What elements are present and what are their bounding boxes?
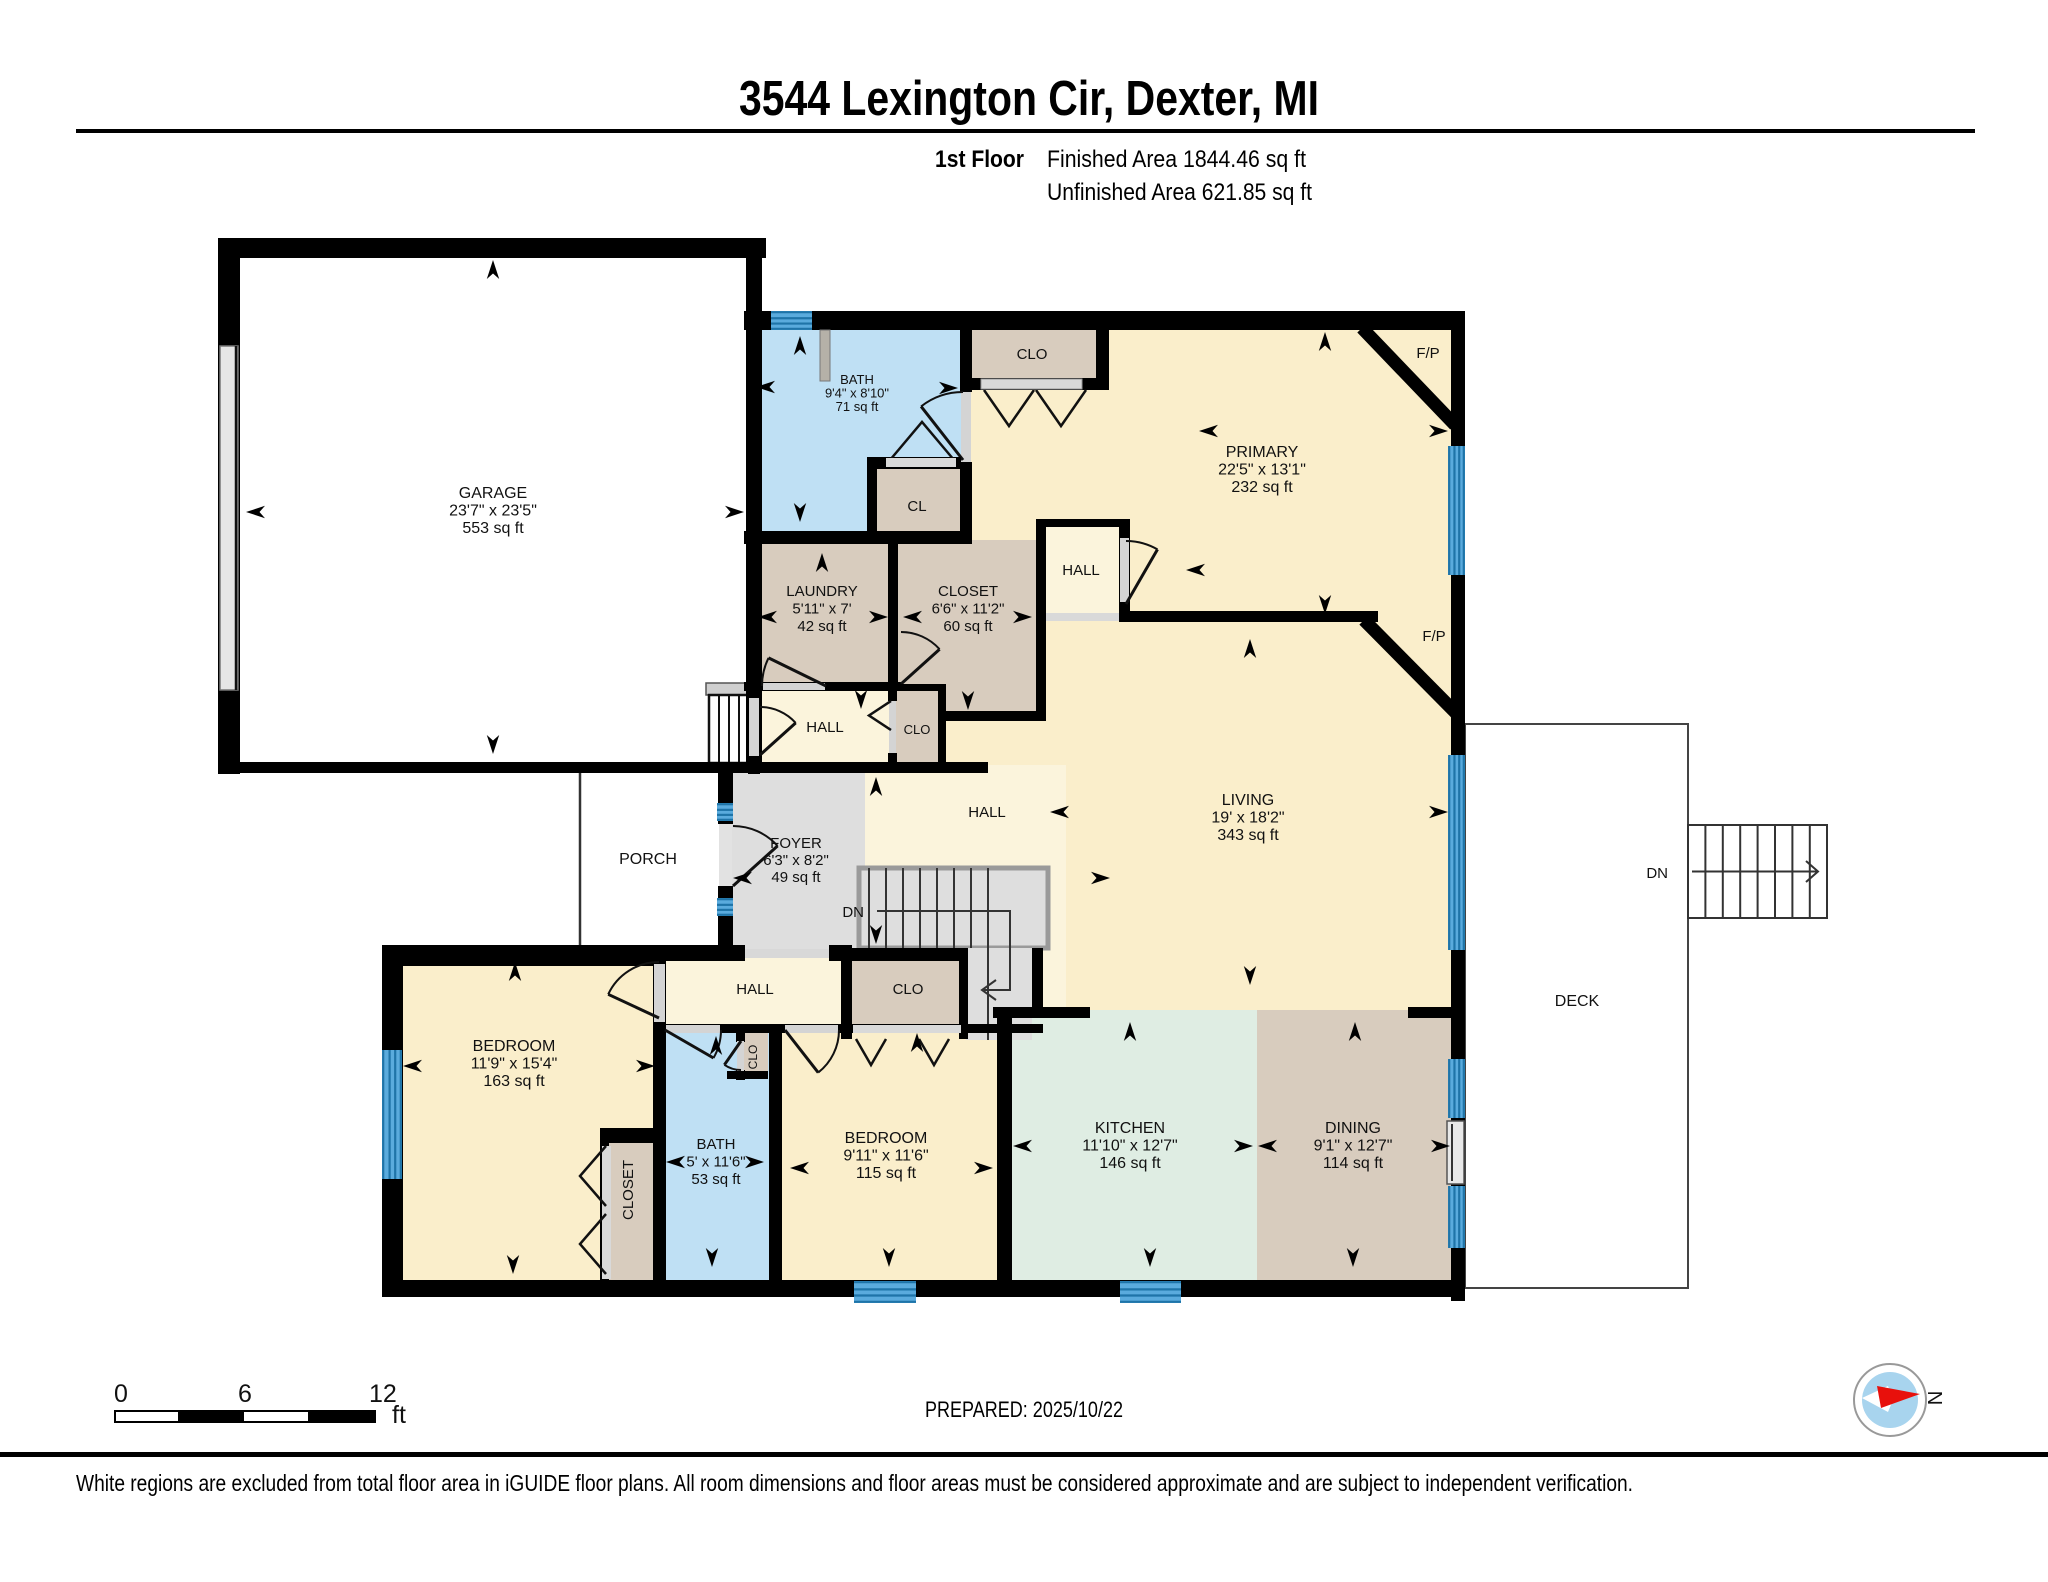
svg-text:5' x 11'6": 5' x 11'6" <box>686 1154 745 1171</box>
svg-text:HALL: HALL <box>806 719 844 736</box>
svg-text:F/P: F/P <box>1422 628 1445 645</box>
svg-text:CLOSET: CLOSET <box>620 1160 637 1220</box>
svg-text:6'3" x 8'2": 6'3" x 8'2" <box>763 852 829 869</box>
svg-text:CLO: CLO <box>904 722 931 737</box>
svg-text:PRIMARY: PRIMARY <box>1226 444 1299 461</box>
svg-text:1st Floor: 1st Floor <box>935 146 1024 173</box>
svg-text:232 sq ft: 232 sq ft <box>1231 479 1293 496</box>
svg-text:N: N <box>1923 1391 1945 1405</box>
svg-text:Unfinished Area 621.85 sq ft: Unfinished Area 621.85 sq ft <box>1047 179 1312 206</box>
svg-text:LAUNDRY: LAUNDRY <box>786 583 857 600</box>
svg-text:BEDROOM: BEDROOM <box>845 1130 928 1147</box>
svg-text:CL: CL <box>907 498 926 515</box>
svg-text:6: 6 <box>238 1380 252 1408</box>
svg-text:11'10" x 12'7": 11'10" x 12'7" <box>1082 1138 1177 1155</box>
svg-text:42 sq ft: 42 sq ft <box>797 618 847 635</box>
svg-text:HALL: HALL <box>736 981 774 998</box>
svg-text:FOYER: FOYER <box>770 835 822 852</box>
svg-text:CLO: CLO <box>746 1045 760 1070</box>
svg-text:DN: DN <box>1646 865 1668 882</box>
svg-text:9'11" x 11'6": 9'11" x 11'6" <box>843 1148 928 1165</box>
svg-text:9'1" x 12'7": 9'1" x 12'7" <box>1314 1138 1393 1155</box>
svg-text:115 sq ft: 115 sq ft <box>856 1165 917 1182</box>
svg-text:CLO: CLO <box>893 981 924 998</box>
svg-text:DINING: DINING <box>1325 1120 1381 1137</box>
svg-text:White regions are excluded fro: White regions are excluded from total fl… <box>76 1470 1633 1496</box>
svg-text:PREPARED: 2025/10/22: PREPARED: 2025/10/22 <box>925 1397 1123 1422</box>
svg-text:GARAGE: GARAGE <box>459 485 527 502</box>
svg-text:3544 Lexington Cir, Dexter, MI: 3544 Lexington Cir, Dexter, MI <box>739 72 1319 126</box>
svg-text:19' x 18'2": 19' x 18'2" <box>1211 810 1284 827</box>
svg-text:163 sq ft: 163 sq ft <box>483 1073 545 1090</box>
svg-text:114 sq ft: 114 sq ft <box>1323 1155 1384 1172</box>
svg-text:BEDROOM: BEDROOM <box>473 1038 556 1055</box>
svg-text:343 sq ft: 343 sq ft <box>1217 827 1279 844</box>
svg-text:71 sq ft: 71 sq ft <box>836 399 879 414</box>
svg-text:CLOSET: CLOSET <box>938 583 998 600</box>
svg-text:553 sq ft: 553 sq ft <box>462 520 524 537</box>
svg-text:23'7" x 23'5": 23'7" x 23'5" <box>449 503 537 520</box>
svg-text:53 sq ft: 53 sq ft <box>691 1171 741 1188</box>
svg-text:HALL: HALL <box>1062 562 1100 579</box>
svg-text:49 sq ft: 49 sq ft <box>771 869 821 886</box>
svg-text:6'6" x 11'2": 6'6" x 11'2" <box>932 601 1005 618</box>
svg-text:DN: DN <box>842 904 864 921</box>
svg-text:5'11" x 7': 5'11" x 7' <box>792 601 851 618</box>
svg-text:11'9" x 15'4": 11'9" x 15'4" <box>471 1056 558 1073</box>
svg-text:146 sq ft: 146 sq ft <box>1099 1155 1161 1172</box>
svg-text:LIVING: LIVING <box>1222 792 1274 809</box>
svg-text:BATH: BATH <box>697 1136 736 1153</box>
svg-text:PORCH: PORCH <box>619 851 677 868</box>
svg-text:HALL: HALL <box>968 804 1006 821</box>
svg-text:DECK: DECK <box>1555 993 1600 1010</box>
svg-text:22'5" x 13'1": 22'5" x 13'1" <box>1218 462 1306 479</box>
svg-text:CLO: CLO <box>1017 346 1048 363</box>
svg-text:F/P: F/P <box>1416 345 1439 362</box>
svg-text:60 sq ft: 60 sq ft <box>943 618 993 635</box>
svg-text:0: 0 <box>114 1380 128 1408</box>
svg-text:KITCHEN: KITCHEN <box>1095 1120 1165 1137</box>
svg-text:ft: ft <box>392 1401 406 1429</box>
svg-text:Finished Area 1844.46 sq ft: Finished Area 1844.46 sq ft <box>1047 146 1306 173</box>
